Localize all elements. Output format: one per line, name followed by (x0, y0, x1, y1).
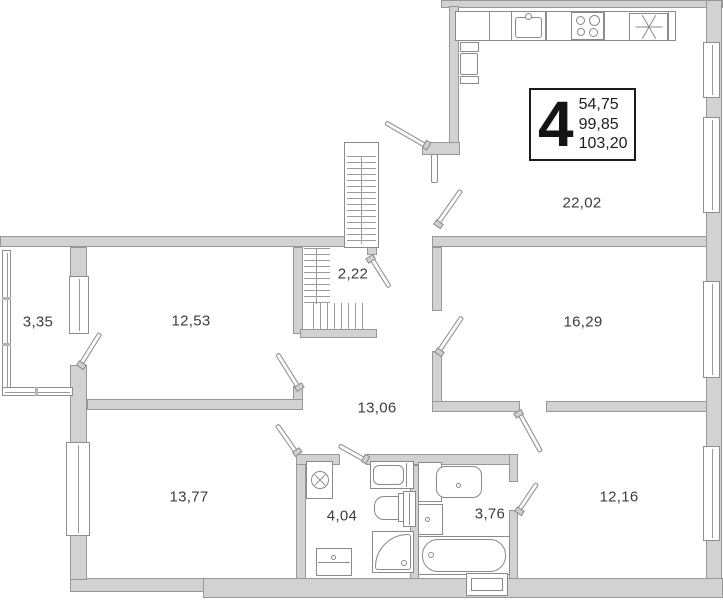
closet-hatch-icon (304, 248, 330, 304)
kitchen-sink-bowl (515, 17, 542, 38)
unit-apartment-area: 99,85 (579, 115, 628, 135)
ventilation-icon (629, 13, 668, 41)
wall (70, 534, 87, 580)
door-closet (369, 256, 392, 288)
window (703, 117, 720, 213)
wall (70, 365, 87, 444)
burner (576, 16, 585, 25)
faucet (525, 13, 532, 20)
bathtub-inner (422, 539, 506, 572)
window (66, 442, 90, 536)
unit-info-box: 4 54,75 99,85 103,20 (529, 88, 636, 161)
counter-divider (546, 12, 547, 40)
shelf-divider (406, 463, 407, 487)
unit-areas: 54,75 99,85 103,20 (579, 95, 628, 154)
balcony-glazing (2, 250, 11, 392)
unit-rooms-count: 4 (538, 96, 574, 152)
wall (509, 454, 518, 482)
wall (293, 247, 303, 334)
washbasin-drain (331, 555, 336, 560)
bathtub-shaft-inner (471, 578, 503, 591)
cabinet-icon (418, 504, 443, 535)
wall (0, 236, 347, 247)
burner (589, 15, 600, 26)
wall (296, 454, 306, 579)
wall (70, 247, 87, 278)
door-room-left-bottom (275, 423, 299, 455)
door-room-left-middle (275, 352, 301, 389)
room-label-right-bottom: 12,16 (599, 489, 638, 506)
stove-icon (571, 12, 604, 40)
wall (300, 329, 377, 338)
wall (432, 401, 520, 412)
wall (546, 401, 707, 412)
room-label-balcony: 3,35 (23, 314, 53, 331)
washbasin-line (318, 562, 350, 563)
wall (70, 578, 205, 592)
glazing-divider (2, 297, 11, 300)
door-bathroom-left (338, 443, 368, 462)
closet-hatch-icon (313, 303, 366, 329)
room-label-wardrobe: 2,22 (338, 266, 368, 283)
counter-divider (604, 12, 605, 40)
room-label-left-middle: 12,53 (171, 313, 210, 330)
balcony-door-window (69, 276, 89, 334)
glazing-divider (2, 343, 11, 346)
room-label-bathroom-right: 3,76 (475, 506, 505, 523)
washbasin-icon (436, 466, 482, 498)
washbasin-drain (456, 483, 461, 488)
door-kitchen-living (435, 189, 463, 226)
wall (441, 0, 723, 8)
shower-drain (401, 560, 407, 566)
room-label-bathroom-left: 4,04 (327, 508, 357, 525)
shelf-inner (373, 465, 404, 485)
fridge-icon (460, 53, 478, 75)
towel-dryer-bar (409, 493, 410, 525)
door-room-right-middle (436, 315, 464, 353)
door-bathroom-right (516, 482, 539, 513)
counter-divider (668, 12, 669, 40)
wardrobe-rail (361, 156, 362, 244)
wall (87, 399, 303, 410)
window (703, 446, 720, 541)
glazing-divider (35, 387, 38, 396)
room-label-left-bottom: 13,77 (169, 489, 208, 506)
washing-machine-icon (306, 461, 333, 499)
room-label-hallway: 13,06 (357, 400, 396, 417)
cabinet-icon (460, 76, 479, 84)
window (703, 281, 720, 378)
window (703, 42, 720, 98)
bathtub-drain (428, 552, 434, 558)
wall (432, 236, 707, 247)
room-label-kitchen-living: 22,02 (562, 195, 601, 212)
toilet-icon (374, 496, 401, 520)
unit-living-area: 54,75 (579, 95, 628, 115)
balcony-door-leaf (78, 332, 102, 367)
burner (589, 28, 598, 37)
wall (509, 510, 518, 579)
closet-rail (316, 248, 317, 304)
wall (432, 247, 442, 311)
counter-divider (489, 12, 490, 40)
floor-plan: 22,02 16,29 12,16 13,06 12,53 13,77 3,35… (0, 0, 723, 600)
door-room-right-bottom (517, 411, 543, 453)
burner (577, 28, 585, 36)
entrance-door-leaf (431, 154, 438, 183)
cabinet-knob (425, 517, 430, 522)
fridge-icon (460, 42, 479, 52)
entrance-door (384, 120, 428, 148)
unit-total-area: 103,20 (579, 134, 628, 154)
room-label-right-middle: 16,29 (563, 314, 602, 331)
wall (203, 578, 723, 598)
